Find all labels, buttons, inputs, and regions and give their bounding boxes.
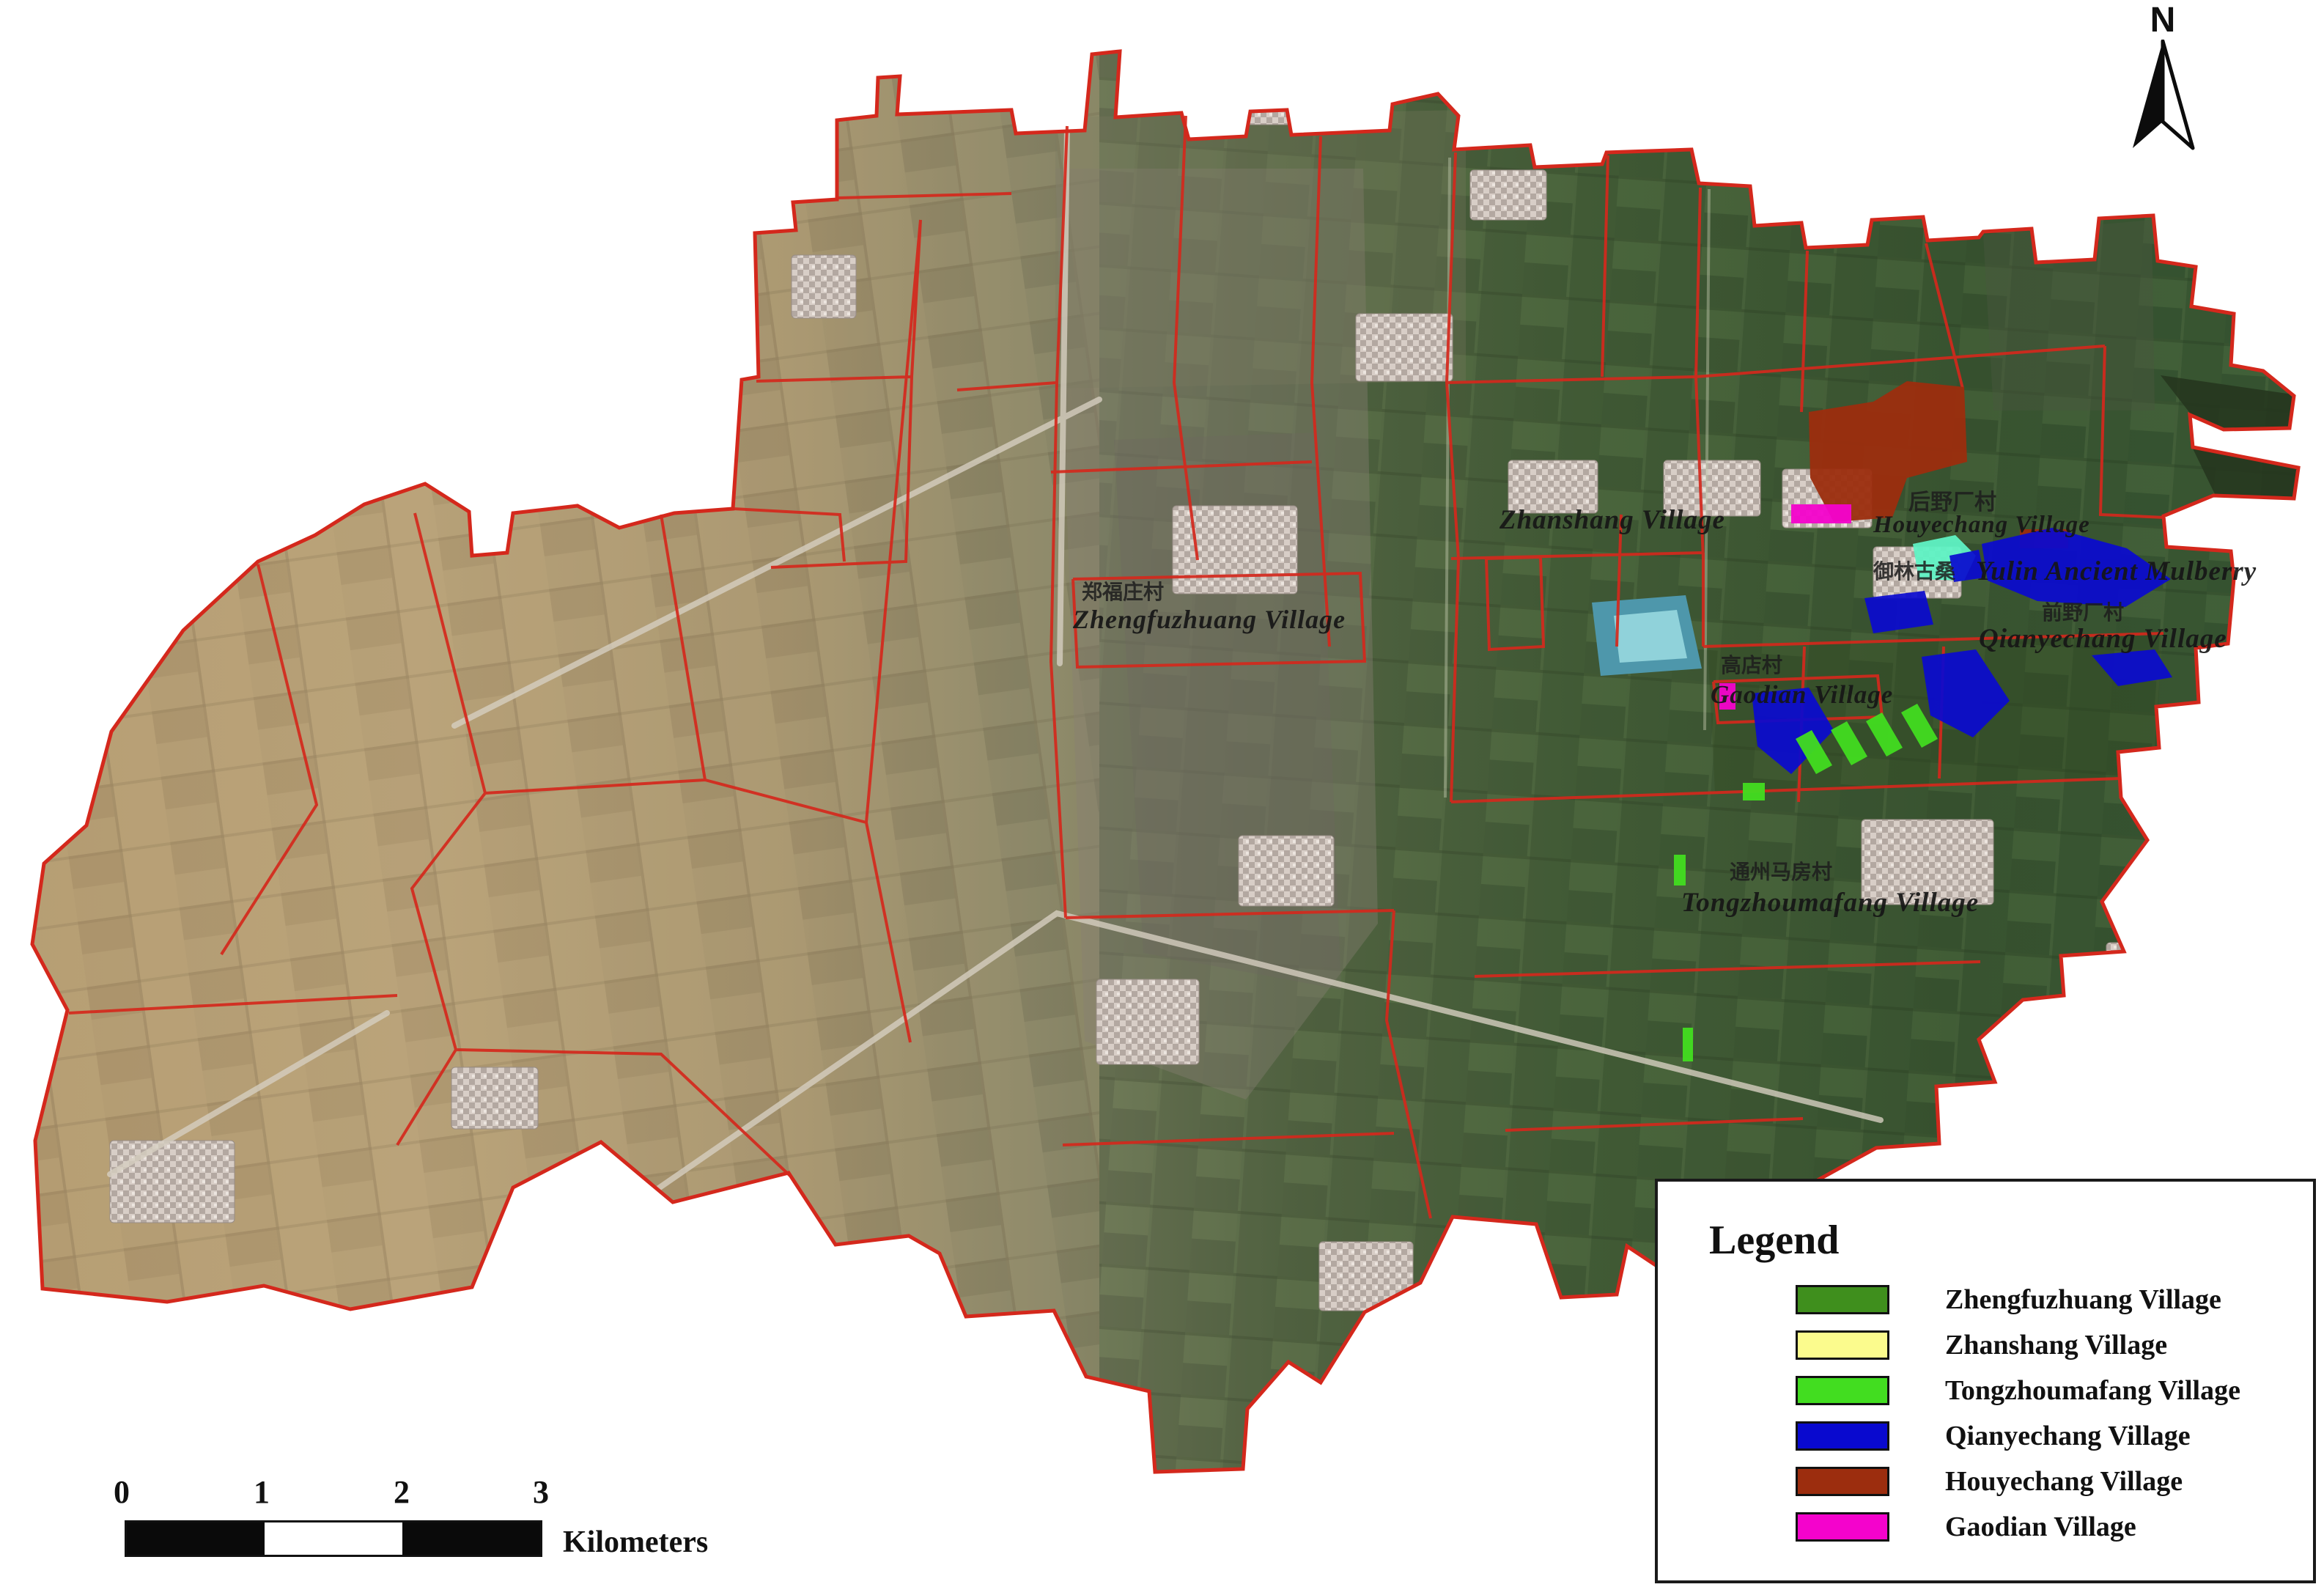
north-arrow: N	[2122, 3, 2203, 151]
yulin-mulberry-label: Yulin Ancient Mulberry	[1976, 556, 2257, 587]
legend-item-label: Zhanshang Village	[1945, 1329, 2167, 1361]
legend-swatch	[1796, 1285, 1889, 1314]
tongzhoumafang-village-label-zh: 通州马房村	[1730, 856, 1832, 885]
zhengfuzhuang-village-label-zh: 郑福庄村	[1082, 576, 1164, 605]
legend-item: Qianyechang Village	[1796, 1413, 2240, 1459]
legend-item-label: Zhengfuzhuang Village	[1945, 1284, 2221, 1316]
scale-segment	[127, 1522, 265, 1555]
legend-item-label: Houyechang Village	[1945, 1465, 2183, 1498]
zhengfuzhuang-village-label: Zhengfuzhuang Village	[1073, 604, 1346, 635]
legend-item-label: Gaodian Village	[1945, 1511, 2136, 1543]
scale-unit-label: Kilometers	[563, 1525, 708, 1560]
legend-item: Zhengfuzhuang Village	[1796, 1277, 2240, 1322]
scale-tick-0: 0	[100, 1473, 144, 1511]
houyechang-village-label: Houyechang Village	[1873, 512, 2090, 539]
north-label: N	[2122, 3, 2203, 38]
scale-segment	[265, 1522, 402, 1555]
yulin-mulberry-label-zh: 御林古桑	[1873, 556, 1955, 585]
legend-title: Legend	[1709, 1217, 1839, 1264]
farmland-tan	[0, 0, 1099, 1587]
legend-item: Gaodian Village	[1796, 1504, 2240, 1550]
figure-canvas: 郑福庄村 Zhengfuzhuang Village Zhanshang Vil…	[0, 0, 2324, 1587]
scale-tick-3: 3	[519, 1473, 563, 1511]
legend-item: Tongzhoumafang Village	[1796, 1368, 2240, 1413]
scale-tick-1: 1	[240, 1473, 284, 1511]
legend-swatch	[1796, 1421, 1889, 1451]
scale-bar: 0 1 2 3 Kilometers	[0, 1466, 770, 1569]
legend-item-label: Tongzhoumafang Village	[1945, 1374, 2240, 1407]
legend-box: Legend Zhengfuzhuang Village Zhanshang V…	[1655, 1179, 2316, 1583]
legend-swatch	[1796, 1376, 1889, 1405]
zhanshang-village-label: Zhanshang Village	[1499, 504, 1725, 536]
ne-cap-fields	[1983, 220, 2155, 410]
legend-rows: Zhengfuzhuang Village Zhanshang Village …	[1796, 1277, 2240, 1550]
legend-item: Houyechang Village	[1796, 1459, 2240, 1504]
north-arrow-icon	[2129, 40, 2196, 151]
water-pond	[1592, 595, 1702, 676]
scale-tick-2: 2	[380, 1473, 424, 1511]
tongzhoumafang-village-label: Tongzhoumafang Village	[1681, 887, 1979, 918]
gaodian-village-label: Gaodian Village	[1711, 680, 1893, 710]
legend-swatch	[1796, 1512, 1889, 1542]
legend-item: Zhanshang Village	[1796, 1322, 2240, 1368]
legend-item-label: Qianyechang Village	[1945, 1420, 2191, 1452]
scale-bar-segments	[125, 1520, 542, 1557]
legend-swatch	[1796, 1330, 1889, 1360]
legend-swatch	[1796, 1467, 1889, 1496]
qianyechang-village-label: Qianyechang Village	[1979, 623, 2227, 655]
qianyechang-village-label-zh: 前野厂村	[2042, 597, 2124, 626]
gaodian-village-label-zh: 高店村	[1721, 649, 1782, 679]
scale-segment	[402, 1522, 540, 1555]
